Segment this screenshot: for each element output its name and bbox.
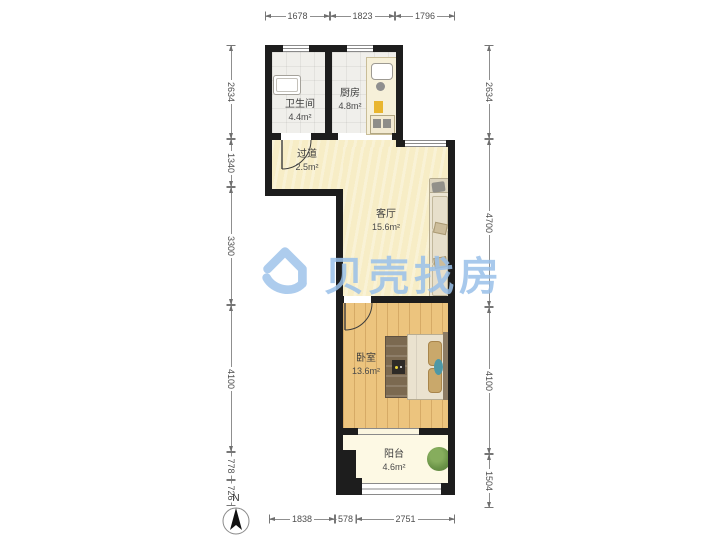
kitchen-window [347,45,373,52]
dim-right-3-value: 4100 [484,368,494,392]
sofa [429,178,450,299]
wall-living-bottom-left [336,296,344,303]
dim-left-3-value: 3300 [226,234,236,258]
wall-bedroom-bottom-left [336,428,358,435]
dim-bottom-3-value: 2751 [393,514,417,524]
dim-right-1: 2634 [482,45,496,139]
sofa-throw-pillow-1 [433,222,448,235]
sofa-throw-pillow-2 [433,256,448,269]
dim-bottom-2-value: 578 [336,514,355,524]
compass-north-label: N [214,494,258,504]
floor-plan-canvas: 卫生间 4.4m² 厨房 4.8m² 过道 2.5m² 客厅 15.6m² 卧室… [0,0,720,540]
dim-left-1-value: 2634 [226,80,236,104]
wall-right-exterior [448,140,455,495]
dresser [385,336,409,398]
dim-right-1-value: 2634 [484,80,494,104]
wall-balcony-bottom-right [441,483,455,495]
living-room-window [405,140,446,147]
wall-bath-kitchen-divider [325,52,332,133]
dim-left-4-value: 4100 [226,366,236,390]
sofa-pillow-gray [431,181,445,193]
wall-balcony-bottom-left [336,478,362,495]
dim-right-2: 4700 [482,139,496,307]
bathtub [273,75,301,95]
kitchen-counter [366,57,398,135]
stove-burner-left [373,119,381,128]
wall-bathroom-bottom-left [265,133,281,140]
kitchen-sink [371,63,393,80]
dim-top-1: 1678 [265,9,330,23]
dim-top-3: 1796 [395,9,455,23]
bed [407,334,445,400]
dim-right-3: 4100 [482,307,496,454]
dim-top-2: 1823 [330,9,395,23]
tv-indicator-dot [395,366,398,369]
dim-top-3-value: 1796 [413,11,437,21]
wall-left-upper [265,45,272,196]
dim-bottom-1: 1838 [269,512,335,526]
compass-icon [214,504,258,538]
dim-bottom-2: 578 [335,512,356,526]
wall-balcony-step-block [336,450,356,478]
stove [370,115,395,134]
balcony-opening [358,428,419,435]
dim-left-2-value: 1340 [226,151,236,175]
beike-logo-icon [256,240,314,298]
dim-left-3: 3300 [224,187,238,305]
bathtub-basin [276,78,298,92]
bathroom-window [283,45,309,52]
wall-hallway-bottom [265,189,343,196]
wall-kitchen-right [396,45,403,147]
compass: N [214,494,258,540]
dim-left-5-value: 778 [226,456,236,475]
dim-left-1: 2634 [224,45,238,139]
wall-kitchen-bottom-right [392,133,403,140]
dim-right-2-value: 4700 [484,211,494,235]
tv [392,360,405,374]
wall-bedroom-bottom-right [419,428,455,435]
wall-kitchen-bottom-left [325,133,338,140]
dim-right-4: 1504 [482,454,496,508]
dim-left-5: 778 [224,452,238,480]
dim-top-1-value: 1678 [285,11,309,21]
kitchen-small-appliance [374,101,383,113]
wall-living-bottom-main [371,296,455,303]
dim-bottom-3: 2751 [356,512,455,526]
bed-cushion-teal [434,359,443,375]
tv-power-dot [400,366,402,368]
kitchen-faucet [376,82,385,91]
dim-bottom-1-value: 1838 [290,514,314,524]
wall-living-left [336,189,343,303]
dim-left-4: 4100 [224,305,238,452]
balcony-window [362,483,441,495]
stove-burner-right [383,119,391,128]
dim-top-2-value: 1823 [350,11,374,21]
dim-right-4-value: 1504 [484,469,494,493]
dim-left-2: 1340 [224,139,238,187]
